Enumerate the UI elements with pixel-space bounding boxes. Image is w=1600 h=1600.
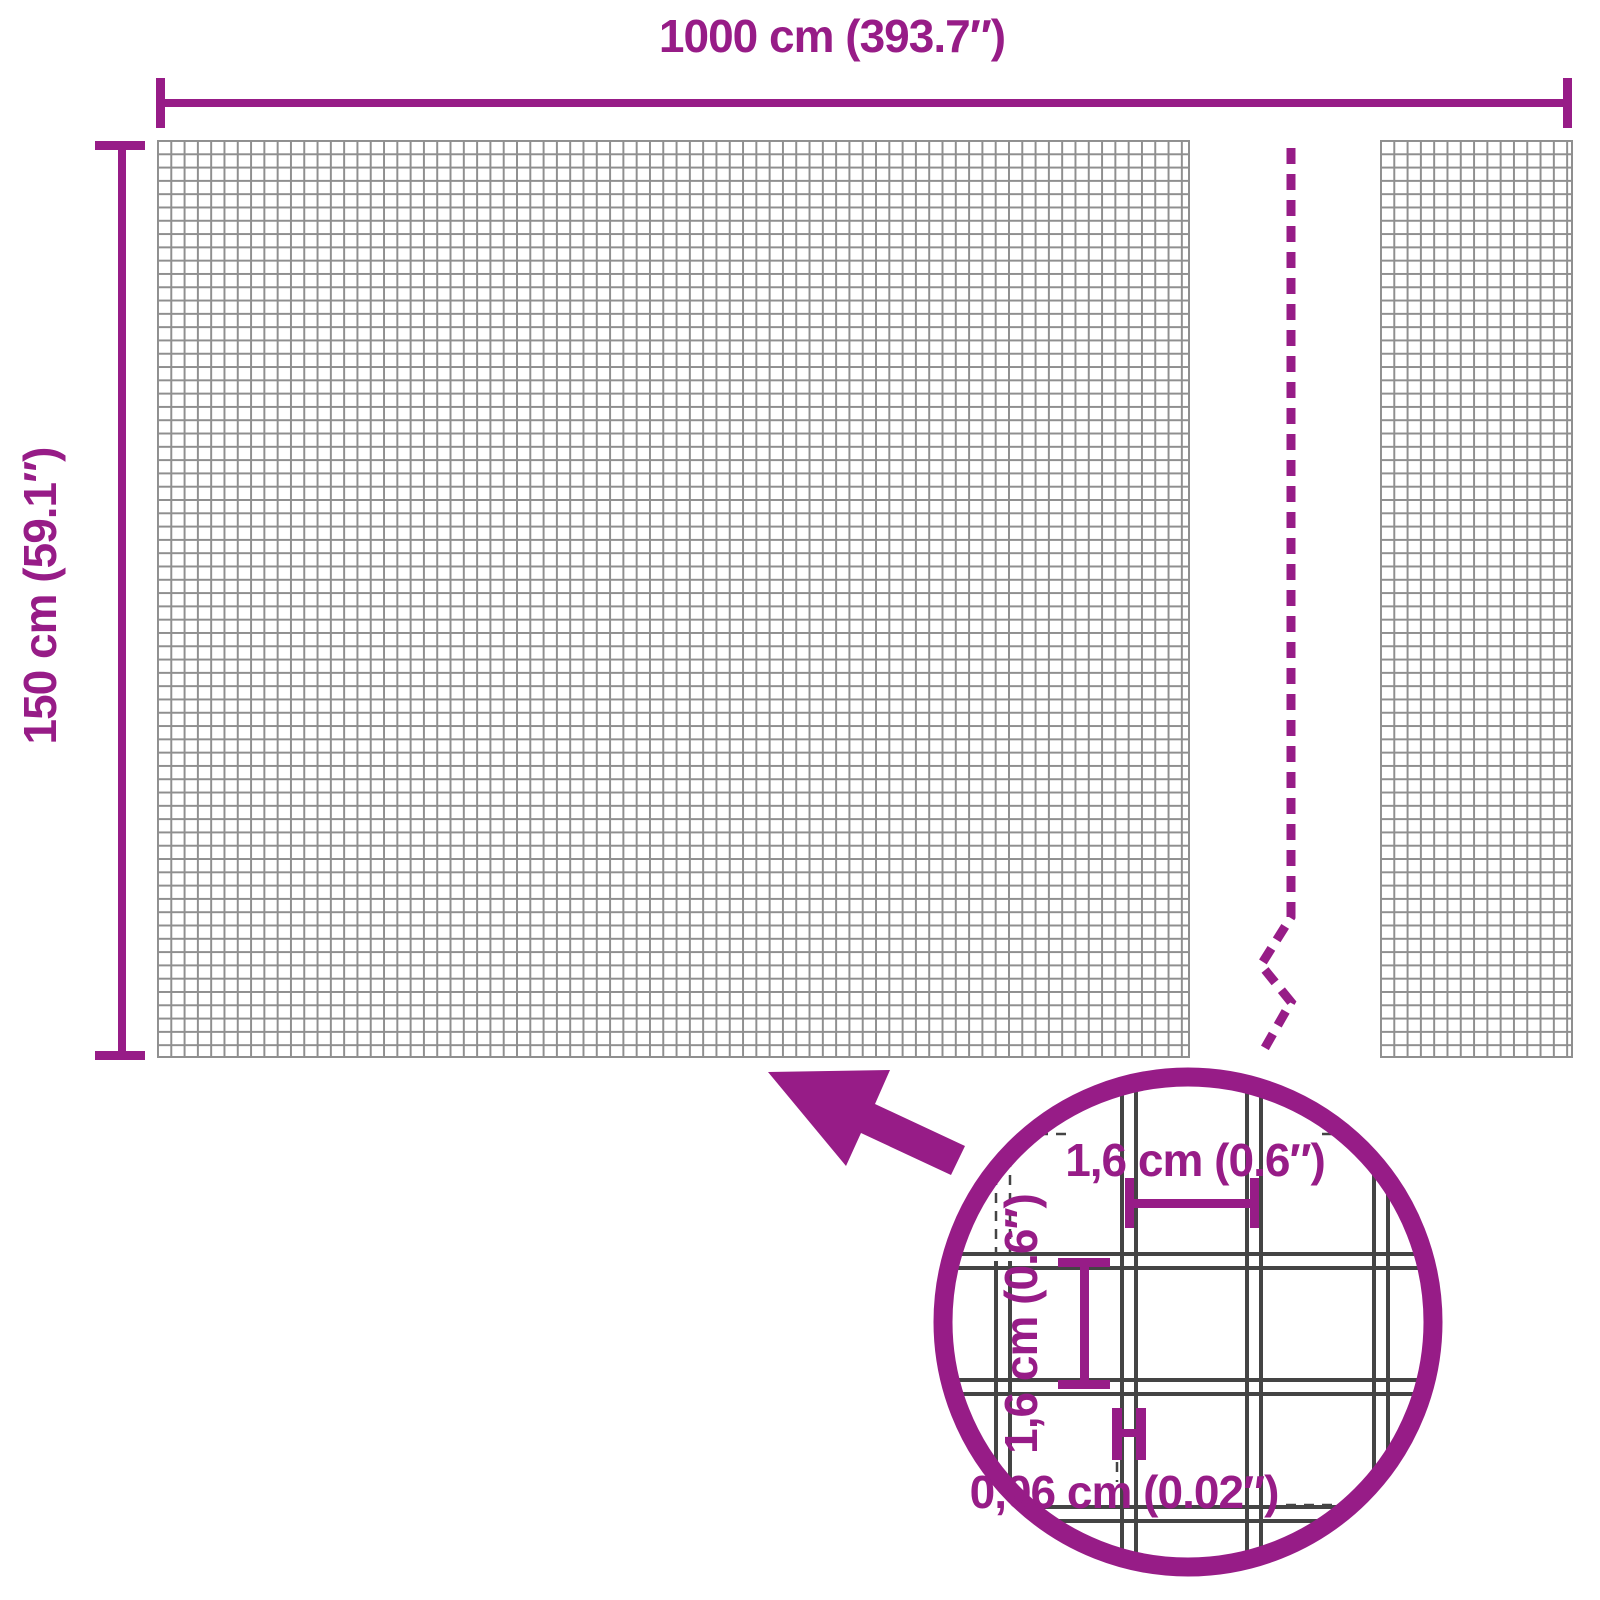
detail-mesh-height-label: 1,6 cm (0.6″): [995, 1124, 1047, 1524]
detail-mesh-width-label: 1,6 cm (0.6″): [995, 1134, 1395, 1186]
product-dimension-diagram: 1000 cm (393.7″) 150 cm (59.1″): [0, 0, 1600, 1600]
zoom-arrow-icon: [768, 1070, 965, 1175]
break-line: [1261, 148, 1291, 1053]
diagram-graphics: [0, 0, 1600, 1600]
detail-wire-thickness-label: 0,06 cm (0.02″): [924, 1466, 1324, 1518]
